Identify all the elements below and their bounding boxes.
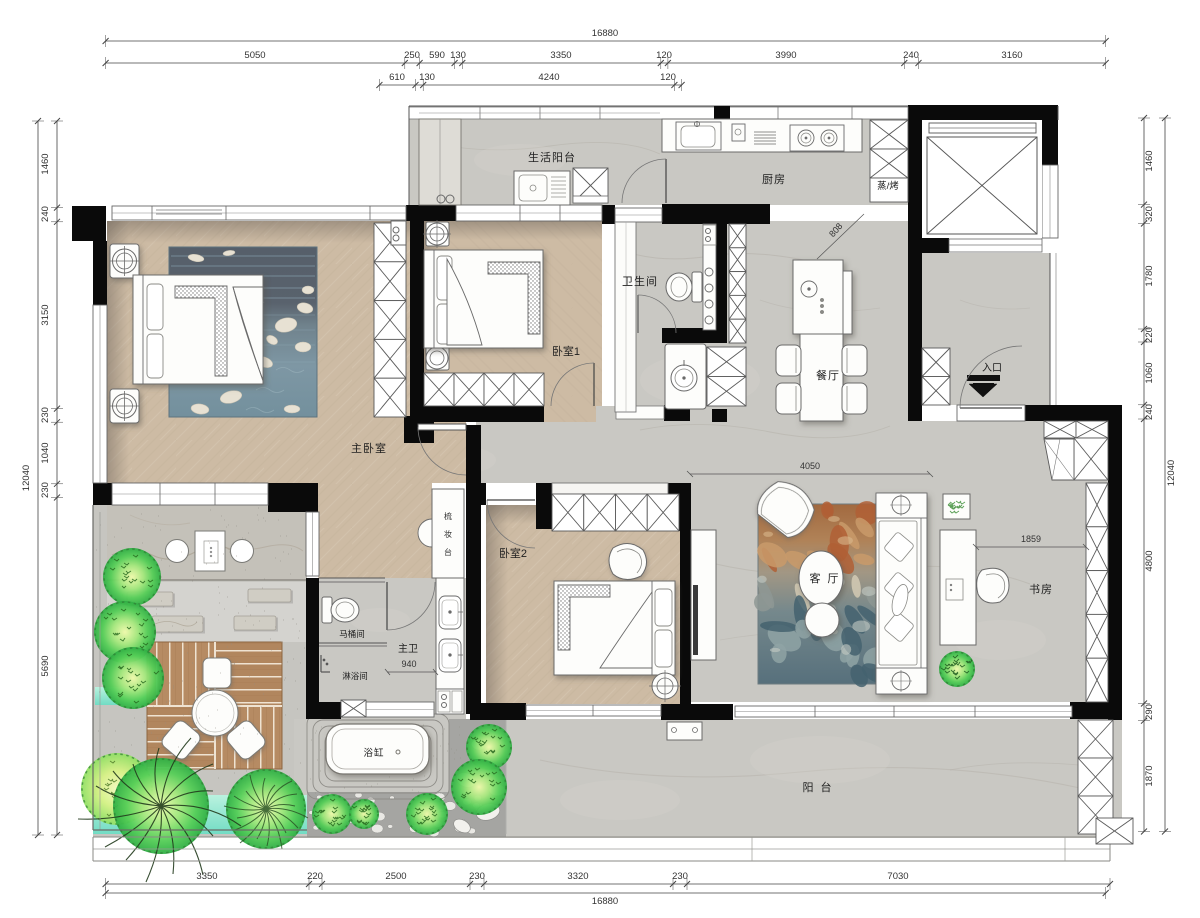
svg-text:240: 240: [903, 50, 919, 61]
svg-text:马桶间: 马桶间: [339, 629, 365, 639]
svg-text:220: 220: [1144, 327, 1155, 343]
svg-text:240: 240: [1144, 404, 1155, 420]
svg-text:320: 320: [1144, 206, 1155, 222]
svg-text:16880: 16880: [592, 28, 618, 39]
svg-text:130: 130: [419, 72, 435, 83]
svg-text:3990: 3990: [775, 50, 796, 61]
svg-text:主卫: 主卫: [398, 643, 418, 655]
svg-text:4240: 4240: [538, 72, 559, 83]
svg-text:940: 940: [401, 659, 416, 669]
svg-text:3150: 3150: [40, 304, 51, 325]
svg-text:卧室1: 卧室1: [552, 344, 580, 358]
svg-text:12040: 12040: [21, 465, 32, 491]
svg-text:1859: 1859: [1021, 534, 1041, 544]
svg-text:230: 230: [469, 871, 485, 882]
svg-text:阳 台: 阳 台: [802, 780, 833, 794]
svg-text:120: 120: [660, 72, 676, 83]
svg-text:5690: 5690: [40, 655, 51, 676]
svg-text:2500: 2500: [385, 871, 406, 882]
svg-text:290: 290: [1144, 704, 1155, 720]
svg-text:客 厅: 客 厅: [809, 571, 840, 585]
svg-text:1040: 1040: [40, 442, 51, 463]
svg-text:台: 台: [444, 547, 452, 557]
svg-text:入口: 入口: [982, 363, 1002, 374]
svg-text:590: 590: [429, 50, 445, 61]
svg-text:3320: 3320: [567, 871, 588, 882]
svg-text:卧室2: 卧室2: [499, 546, 527, 560]
svg-text:餐厅: 餐厅: [816, 368, 840, 382]
svg-text:蒸/烤: 蒸/烤: [877, 180, 899, 192]
svg-text:浴缸: 浴缸: [363, 747, 384, 759]
svg-text:主卧室: 主卧室: [351, 441, 387, 455]
svg-text:120: 120: [656, 50, 672, 61]
svg-text:610: 610: [389, 72, 405, 83]
svg-text:1460: 1460: [1144, 150, 1155, 171]
svg-text:240: 240: [40, 206, 51, 222]
svg-text:230: 230: [40, 482, 51, 498]
svg-text:1060: 1060: [1144, 362, 1155, 383]
svg-text:淋浴间: 淋浴间: [342, 671, 368, 681]
svg-text:4050: 4050: [800, 461, 820, 471]
svg-text:230: 230: [40, 407, 51, 423]
svg-text:230: 230: [672, 871, 688, 882]
svg-text:3350: 3350: [196, 871, 217, 882]
svg-text:3350: 3350: [550, 50, 571, 61]
svg-text:220: 220: [307, 871, 323, 882]
svg-text:书房: 书房: [1029, 583, 1053, 596]
svg-text:4800: 4800: [1144, 550, 1155, 571]
svg-text:生活阳台: 生活阳台: [528, 150, 576, 164]
svg-text:130: 130: [450, 50, 466, 61]
svg-text:1870: 1870: [1144, 765, 1155, 786]
svg-text:3160: 3160: [1001, 50, 1022, 61]
svg-text:5050: 5050: [244, 50, 265, 61]
svg-text:12040: 12040: [1166, 460, 1177, 486]
svg-text:卫生间: 卫生间: [622, 274, 658, 288]
svg-text:16880: 16880: [592, 896, 618, 907]
svg-text:250: 250: [404, 50, 420, 61]
svg-text:梳: 梳: [444, 511, 452, 521]
svg-text:7030: 7030: [887, 871, 908, 882]
svg-text:1780: 1780: [1144, 265, 1155, 286]
svg-text:1460: 1460: [40, 153, 51, 174]
svg-text:厨房: 厨房: [762, 173, 786, 186]
svg-text:妆: 妆: [444, 529, 452, 539]
